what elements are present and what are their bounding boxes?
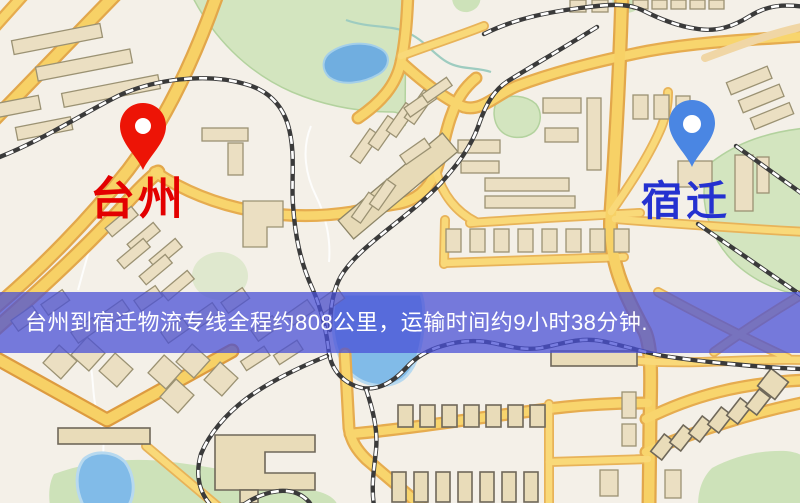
map-graphics bbox=[0, 0, 800, 503]
destination-pin-icon[interactable] bbox=[669, 100, 715, 167]
route-info-text: 台州到宿迁物流专线全程约808公里，运输时间约9小时38分钟. bbox=[25, 310, 648, 335]
route-info-banner: 台州到宿迁物流专线全程约808公里，运输时间约9小时38分钟. bbox=[0, 292, 800, 353]
destination-pin-hole bbox=[683, 115, 701, 133]
destination-label: 宿迁 bbox=[641, 181, 731, 222]
origin-label: 台州 bbox=[90, 177, 186, 222]
map-canvas[interactable]: 台州 宿迁 台州到宿迁物流专线全程约808公里，运输时间约9小时38分钟. bbox=[0, 0, 800, 503]
destination-pin-shape bbox=[669, 100, 715, 167]
origin-pin-hole bbox=[135, 118, 151, 134]
